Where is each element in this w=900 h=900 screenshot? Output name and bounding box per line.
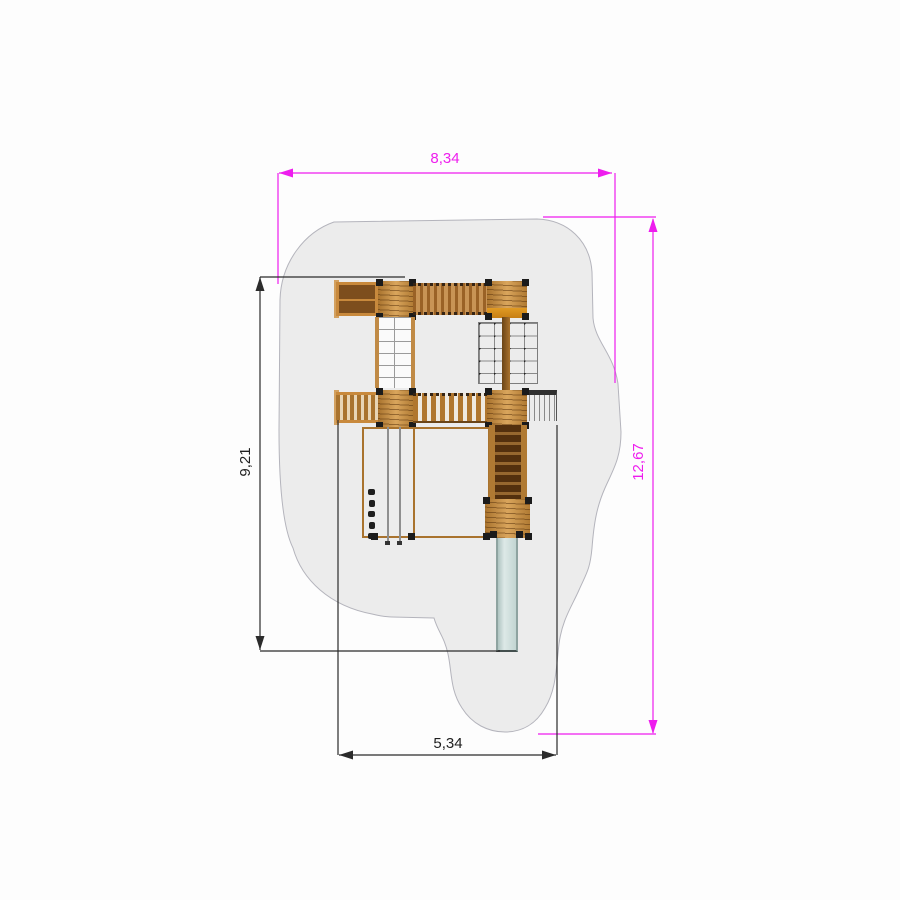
plan-canvas: 8,34 12,67 9,21 5,34	[0, 0, 900, 900]
dimension-layer	[0, 0, 900, 900]
arrow-left	[339, 751, 353, 760]
arrow-left	[279, 169, 293, 178]
dim-total-width	[278, 169, 615, 384]
arrow-up	[649, 218, 658, 232]
dim-equipment-height	[256, 277, 501, 651]
dim-label-total-height: 12,67	[630, 427, 648, 497]
dim-label-total-width: 8,34	[410, 150, 480, 168]
arrow-up	[256, 277, 265, 291]
arrow-down	[256, 636, 265, 650]
arrow-right	[542, 751, 556, 760]
dim-label-equipment-height: 9,21	[237, 427, 255, 497]
arrow-right	[598, 169, 612, 178]
dim-equipment-width	[338, 420, 557, 760]
arrow-down	[649, 720, 658, 734]
dim-label-equipment-width: 5,34	[413, 735, 483, 753]
